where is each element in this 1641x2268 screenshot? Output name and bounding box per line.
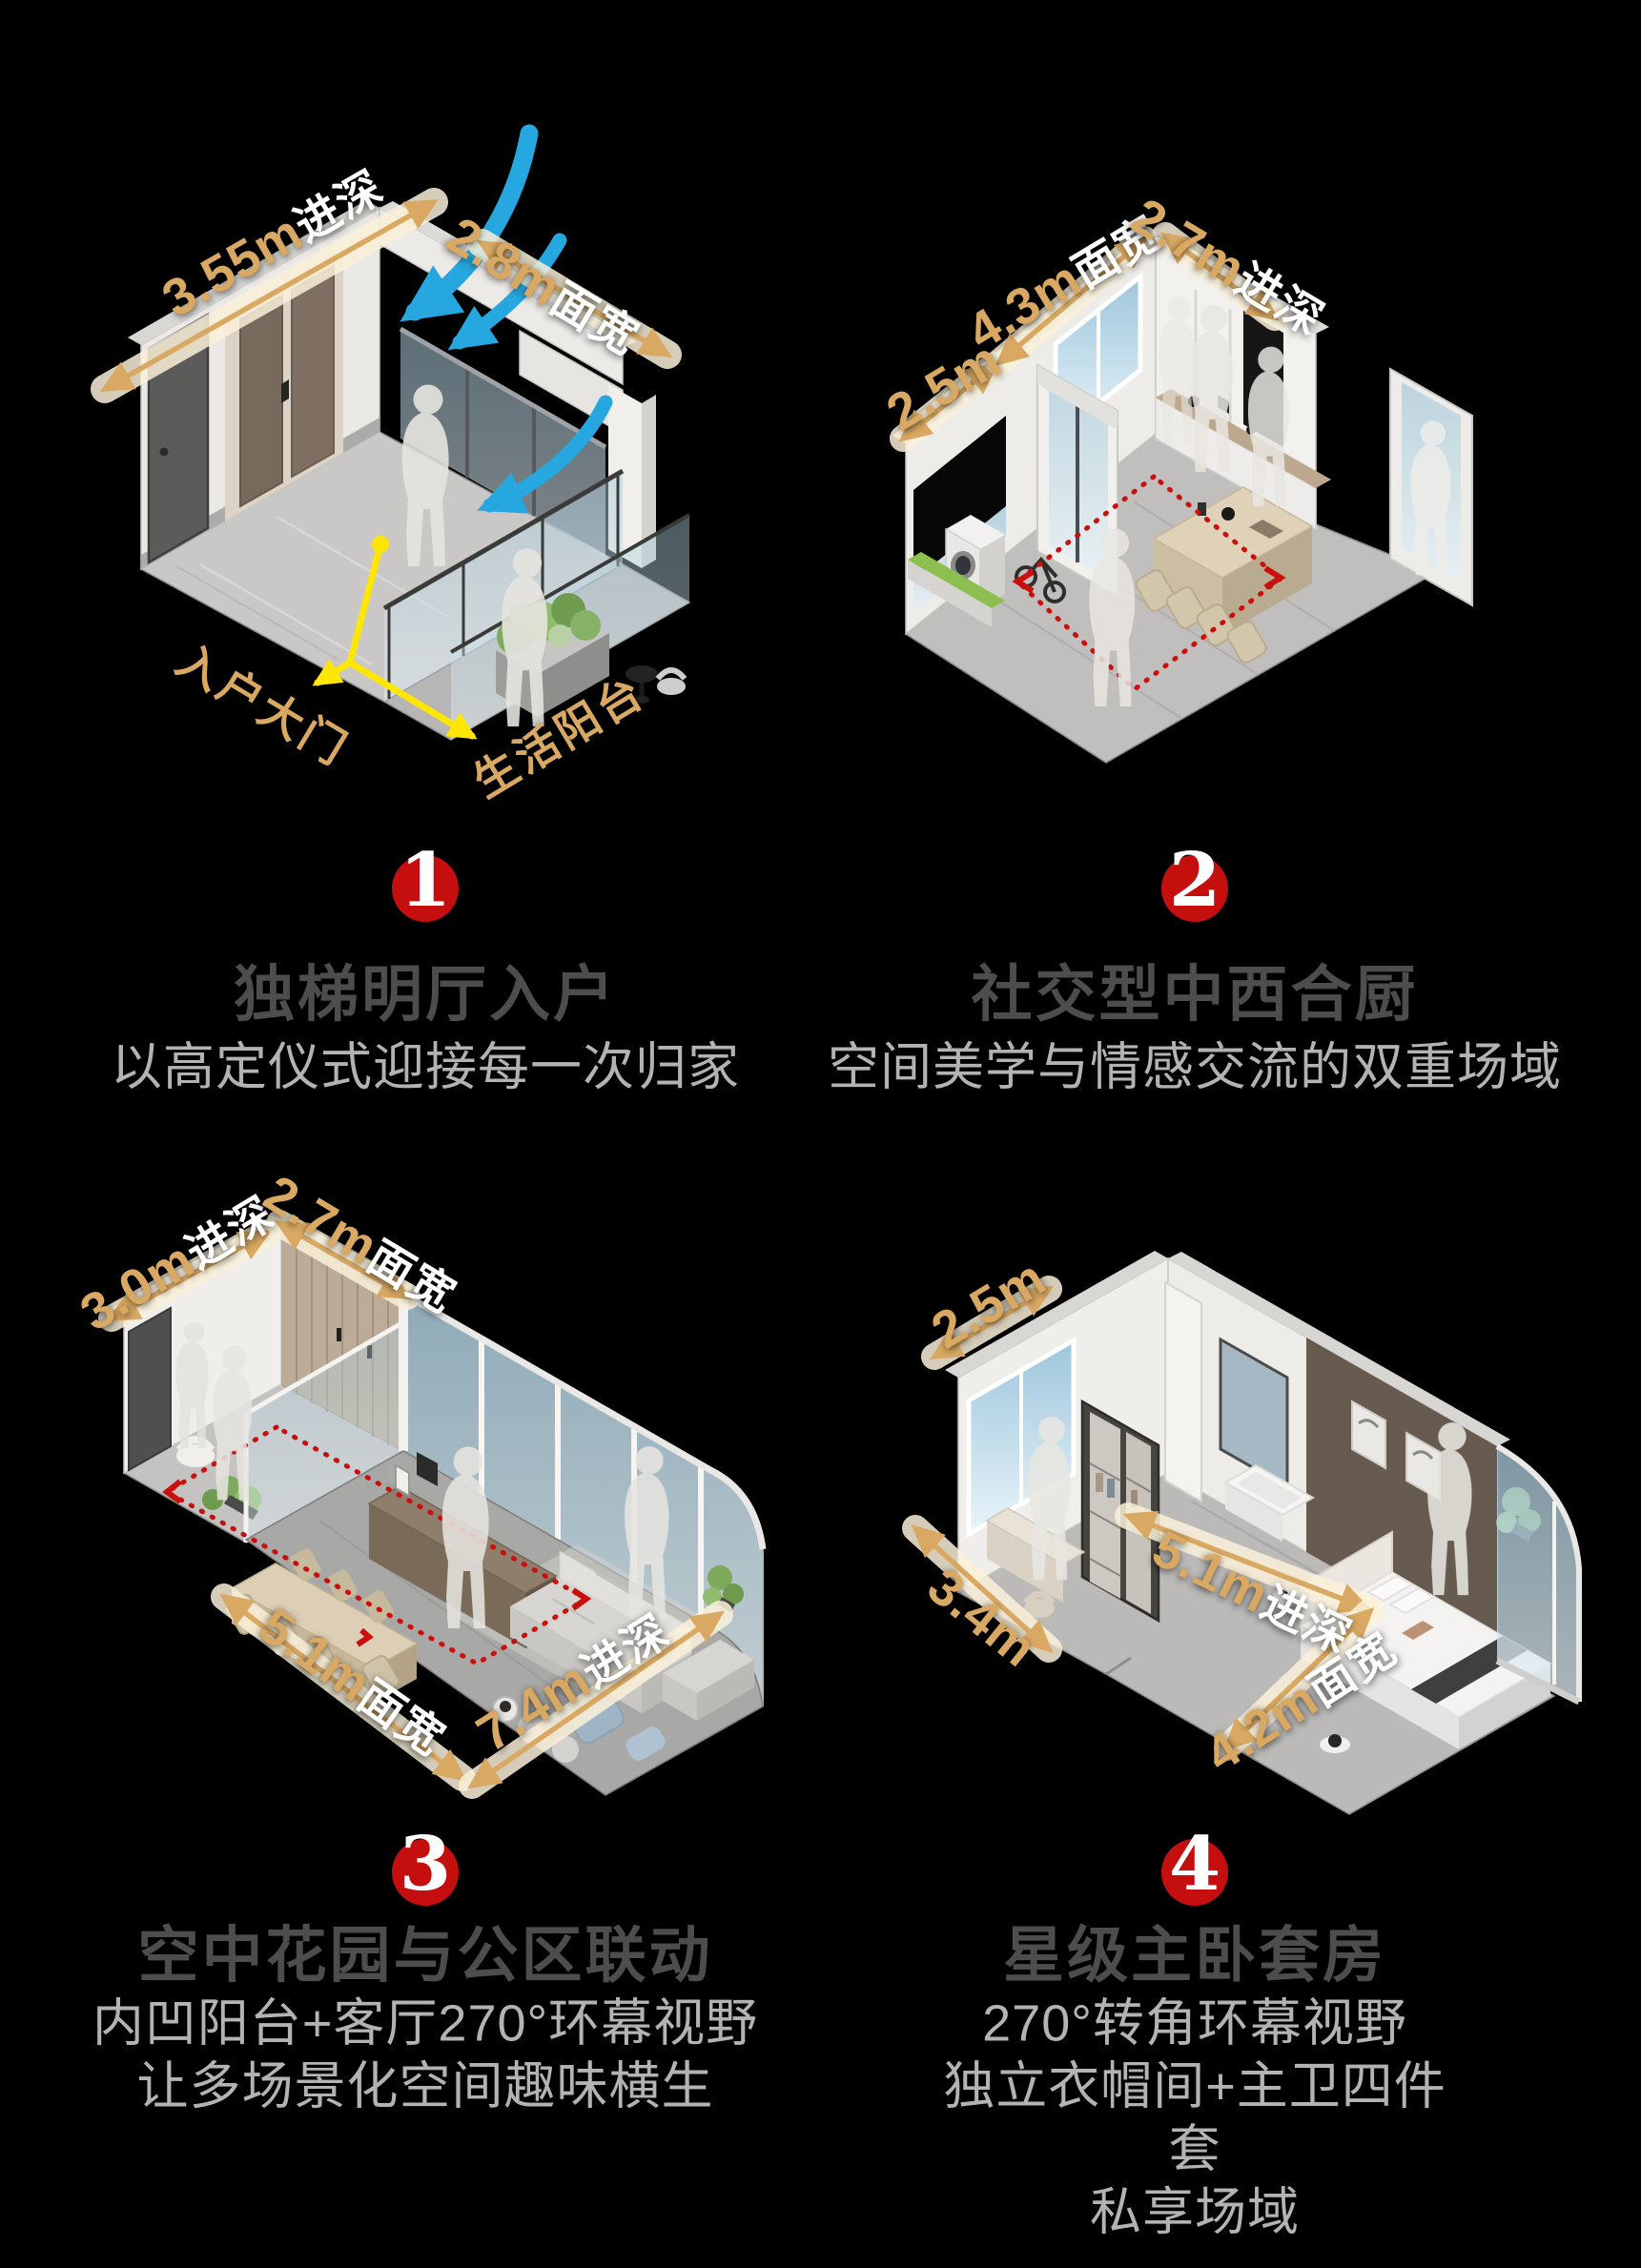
step-badge-4: 4: [1161, 1839, 1228, 1906]
room4-curved-glass: [1497, 1446, 1579, 1702]
section-title-2: 社交型中西合厨: [972, 946, 1419, 1033]
step-badge-3: 3: [392, 1839, 459, 1906]
room4-divider: [1165, 1282, 1201, 1502]
section-subtitle-3b: 让多场景化空间趣味横生: [137, 2044, 714, 2119]
section-subtitle-2: 空间美学与情感交流的双重场域: [828, 1025, 1562, 1100]
section-subtitle-1: 以高定仪式迎接每一次归家: [111, 1025, 740, 1100]
step-badge-1: 1: [392, 855, 459, 922]
feature-poster: 3.55m进深 2.8m面宽 入户大门 生活阳台 2.5m 4.3m面宽 2.7…: [0, 0, 1641, 2268]
step-badge-2: 2: [1161, 855, 1228, 922]
section-title-1: 独梯明厅入户: [234, 946, 617, 1033]
section-subtitle-4d: 私享场域: [1090, 2170, 1300, 2245]
